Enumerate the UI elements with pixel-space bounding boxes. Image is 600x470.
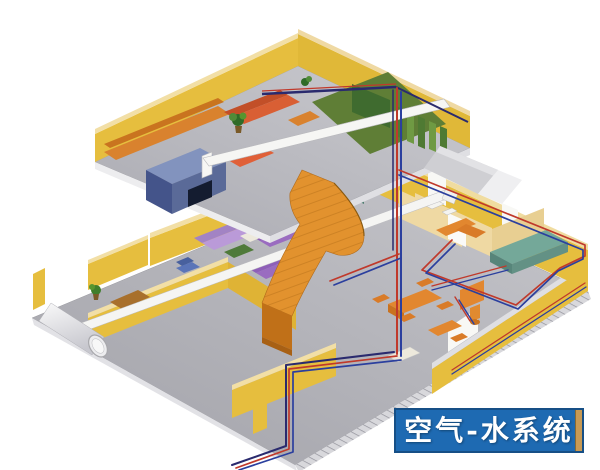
- caption-edge-accent: [575, 410, 582, 451]
- building-illustration: [0, 0, 600, 470]
- screenshot-canvas: 空气-水系统: [0, 0, 600, 470]
- caption-text: 空气-水系统: [404, 417, 574, 445]
- caption-box: 空气-水系统: [394, 408, 584, 453]
